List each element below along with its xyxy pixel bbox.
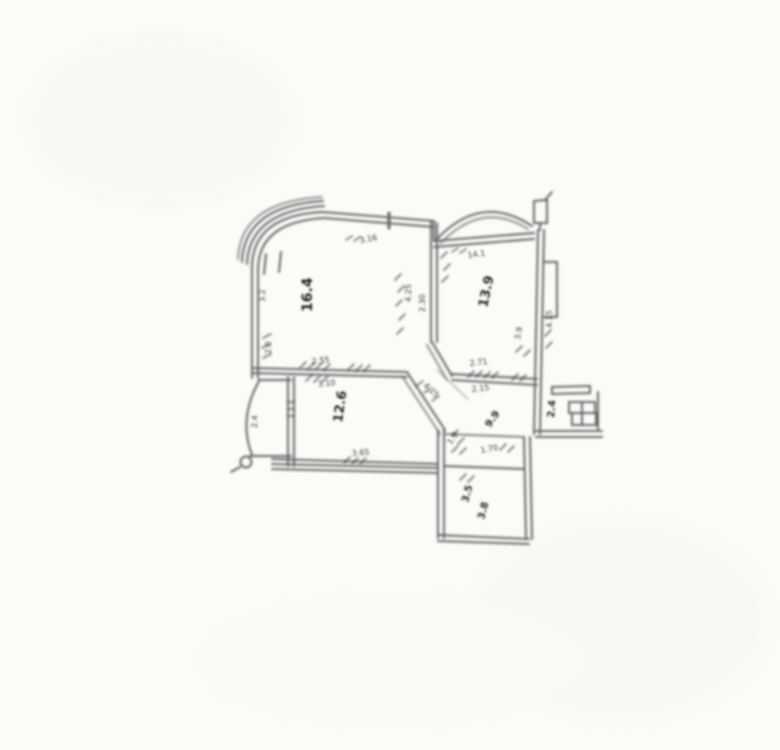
scanned-floor-plan-page: 16.4 13.9 12.6 9.9 3.5 3.8 2.4 2.4 3.16 … [0, 0, 780, 750]
annotation-room-main: 16.4 [300, 277, 316, 312]
annotation-dim-j: 2.0 [264, 341, 273, 354]
annotation-dim-k: 3.2 [258, 289, 267, 302]
annotation-dim-i: 4.15 [545, 310, 554, 328]
floor-plan-drawing: 16.4 13.9 12.6 9.9 3.5 3.8 2.4 2.4 3.16 … [0, 0, 780, 750]
annotation-dim-a: 2.55 [311, 355, 330, 366]
annotation-dim-b: 3.10 [317, 378, 336, 389]
annotation-dim-d: 4.25 [404, 284, 413, 302]
annotation-dim-c: 3.65 [351, 447, 370, 458]
annotation-dim-e: 2.30 [418, 294, 427, 312]
annotation-bay: 2.4 [250, 415, 259, 428]
annotation-porch: 2.4 [546, 400, 559, 419]
